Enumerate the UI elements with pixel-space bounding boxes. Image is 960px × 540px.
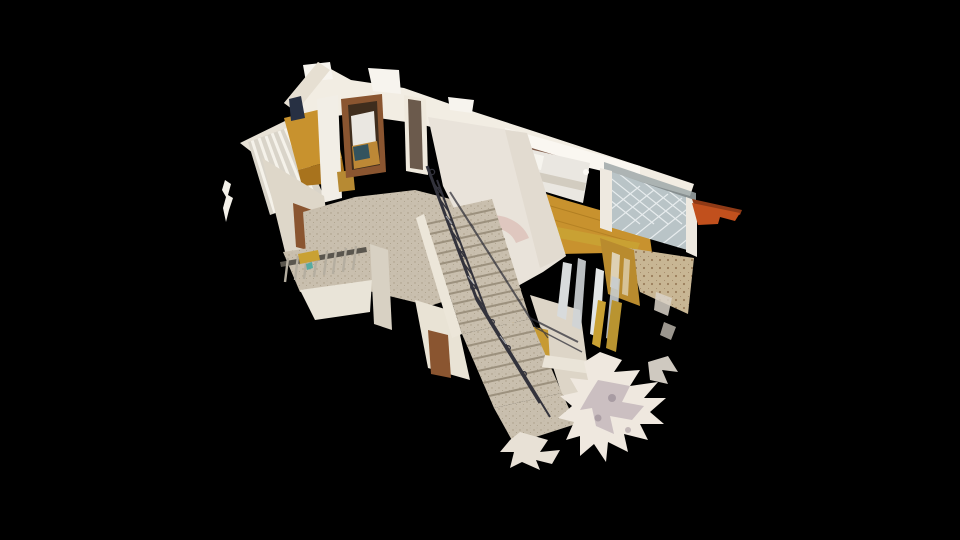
- blue-rug: [353, 144, 370, 161]
- doorway-left: [341, 94, 386, 178]
- dollhouse-scene[interactable]: [0, 0, 960, 540]
- wall-sconce: [583, 169, 589, 175]
- upper-door: [404, 95, 428, 175]
- terrace-post: [600, 168, 612, 232]
- 3d-viewport[interactable]: [0, 0, 960, 540]
- brown-lower-door: [428, 330, 451, 378]
- dark-door-panel: [408, 99, 423, 170]
